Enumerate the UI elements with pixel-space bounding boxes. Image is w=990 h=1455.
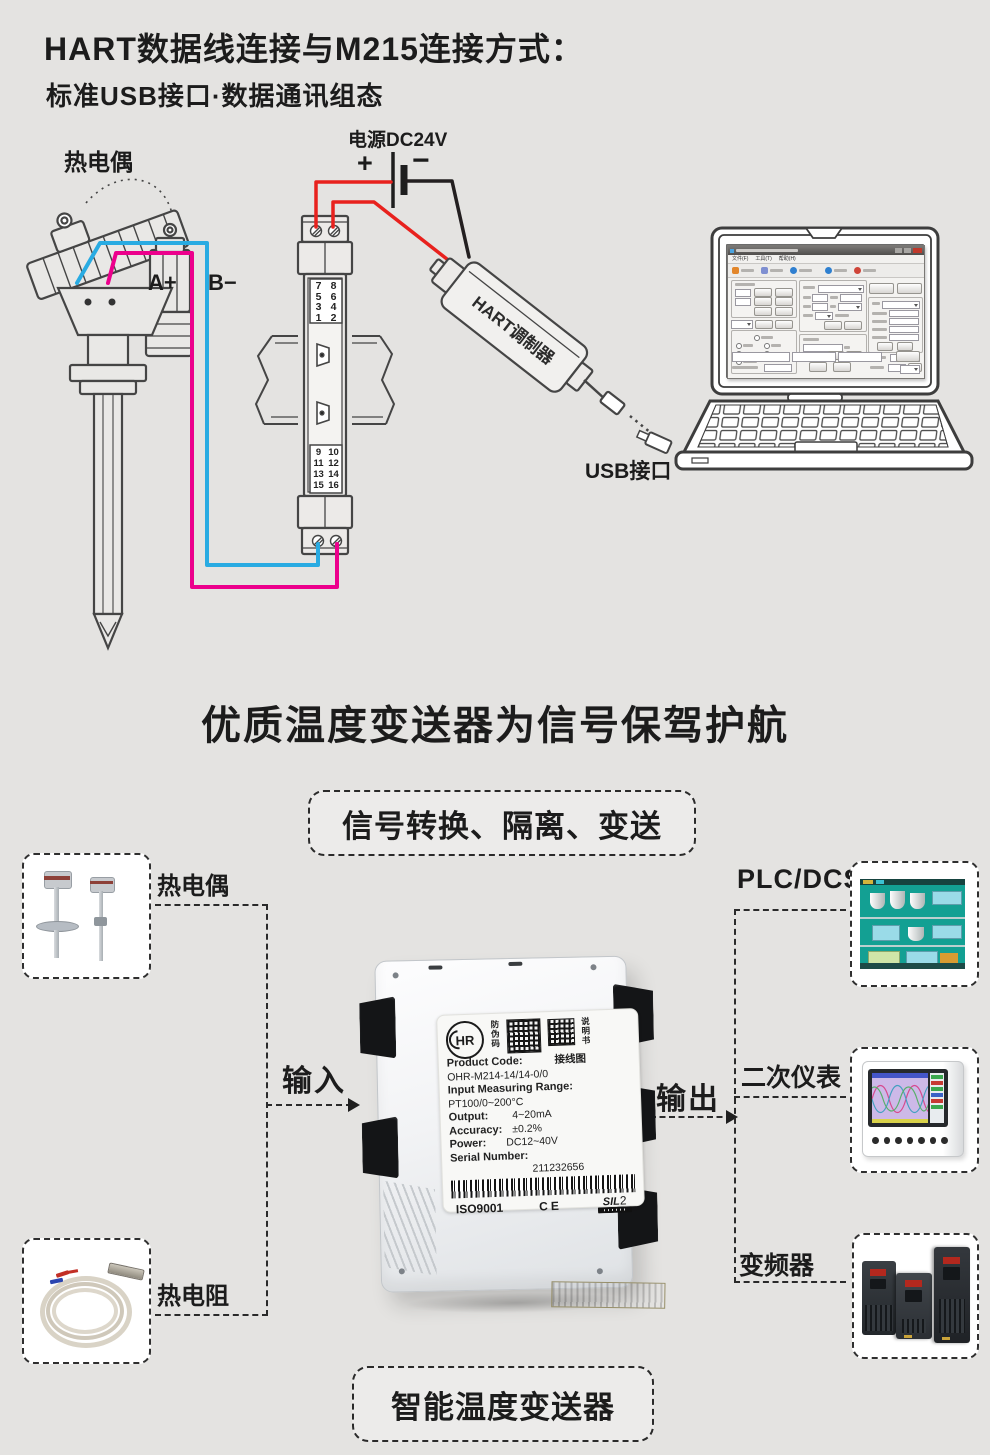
window-titlebar xyxy=(728,246,924,255)
footer-badge-box: 智能温度变送器 xyxy=(352,1366,654,1442)
connector-line xyxy=(734,909,846,911)
terminal-b-label: B− xyxy=(208,270,237,296)
screw-icon xyxy=(597,1268,603,1274)
close-icon xyxy=(913,248,922,253)
usb-plug-icon xyxy=(636,428,672,454)
menu-help: 帮助(H) xyxy=(779,255,796,263)
source-label-thermocouple: 热电偶 xyxy=(157,866,229,901)
brand-logo: HR xyxy=(445,1020,484,1059)
sil-badge: SIL2 xyxy=(597,1195,632,1213)
vfd-unit xyxy=(896,1273,932,1339)
input-terminal-block xyxy=(362,1116,399,1179)
tool-read-icon xyxy=(732,267,739,274)
banner-box: 信号转换、隔离、变送 xyxy=(308,790,696,856)
screw-icon xyxy=(393,972,399,978)
input-arrow-line xyxy=(266,1104,352,1106)
recorder-photo-box xyxy=(850,1047,979,1173)
wiring-diagram-label: 接线图 xyxy=(554,1053,586,1068)
window-body xyxy=(728,278,924,378)
power-plus-sign: + xyxy=(357,148,373,179)
manual-label: 说明书 xyxy=(581,1017,591,1049)
output-arrowhead-icon xyxy=(726,1110,738,1124)
ce-mark: CE xyxy=(539,1199,562,1214)
connector-line xyxy=(155,904,268,906)
thermocouple-photo-box xyxy=(22,853,151,979)
serial-value: 211232656 xyxy=(532,1161,584,1176)
usb-port-label: USB接口 xyxy=(585,455,671,485)
power-minus-sign: − xyxy=(412,144,430,178)
din-clip xyxy=(551,1281,665,1309)
screw-icon xyxy=(590,964,596,970)
antifake-label: 防伪码 xyxy=(490,1020,500,1052)
recorder-buttons xyxy=(872,1135,948,1145)
power-battery xyxy=(393,152,404,208)
connector-line xyxy=(266,904,268,1316)
footer-badge-text: 智能温度变送器 xyxy=(391,1382,615,1427)
terminal-a-label: A+ xyxy=(148,270,177,296)
window-toolbar xyxy=(728,264,924,278)
input-terminal-block xyxy=(359,996,396,1059)
input-arrowhead-icon xyxy=(348,1098,360,1112)
menu-file: 文件(F) xyxy=(732,255,748,263)
banner-text: 信号转换、隔离、变送 xyxy=(342,801,662,846)
recorder-value-list xyxy=(930,1073,944,1123)
rtd-probe xyxy=(107,1262,145,1280)
rtd-photo-box xyxy=(22,1238,151,1364)
maximize-icon xyxy=(904,248,911,253)
config-software-window: 文件(F) 工具(T) 帮助(H) xyxy=(727,245,925,379)
tool-upload-icon xyxy=(825,267,832,274)
app-icon xyxy=(730,249,734,253)
hart-modulator: HART调制器 xyxy=(417,242,672,453)
page-subtitle: 标准USB接口·数据通讯组态 xyxy=(46,76,384,113)
qr-code-icon xyxy=(547,1018,575,1046)
qr-code-icon xyxy=(506,1018,541,1053)
window-menubar: 文件(F) 工具(T) 帮助(H) xyxy=(728,255,924,264)
tool-device-icon xyxy=(761,267,768,274)
section-title: 优质温度变送器为信号保驾护航 xyxy=(0,693,990,751)
dest-label-plc-dcs: PLC/DCS xyxy=(737,864,863,895)
dest-label-recorder: 二次仪表 xyxy=(741,1058,841,1094)
connector-line xyxy=(155,1314,268,1316)
transmitter-module-photo: HR 防伪码 说明书 Product Code:接线图 OHR-M214-14/… xyxy=(358,947,666,1325)
thermocouple-illustration xyxy=(14,177,192,648)
plc-dcs-photo-box xyxy=(850,861,979,987)
scada-screen xyxy=(860,879,965,969)
vfd-photo-box xyxy=(852,1233,979,1359)
vfd-unit xyxy=(862,1261,896,1335)
input-label: 输入 xyxy=(282,1056,346,1100)
module-top-terminal-numbers: 78 56 34 12 xyxy=(311,281,341,321)
source-label-rtd: 热电阻 xyxy=(157,1276,229,1311)
minimize-icon xyxy=(895,248,902,253)
dest-label-vfd: 变频器 xyxy=(739,1246,814,1282)
recorder-screen xyxy=(872,1073,928,1123)
thermocouple-label: 热电偶 xyxy=(64,143,133,177)
tool-stop-icon xyxy=(854,267,861,274)
vfd-unit xyxy=(934,1247,970,1343)
tool-sync-icon xyxy=(790,267,797,274)
iso-cert: ISO9001 xyxy=(456,1201,504,1217)
connector-line xyxy=(734,1096,846,1098)
page-title: HART数据线连接与M215连接方式： xyxy=(44,24,584,70)
page: HART调制器 HART数据线连接与M215连接 xyxy=(0,0,990,1455)
product-label: HR 防伪码 说明书 Product Code:接线图 OHR-M214-14/… xyxy=(436,1008,645,1213)
vent-slots xyxy=(383,1180,437,1277)
din-module-illustration xyxy=(298,216,352,554)
module-bottom-terminal-numbers: 910 1112 1314 1516 xyxy=(311,447,341,491)
output-label: 输出 xyxy=(656,1074,720,1118)
menu-tools: 工具(T) xyxy=(755,255,771,263)
